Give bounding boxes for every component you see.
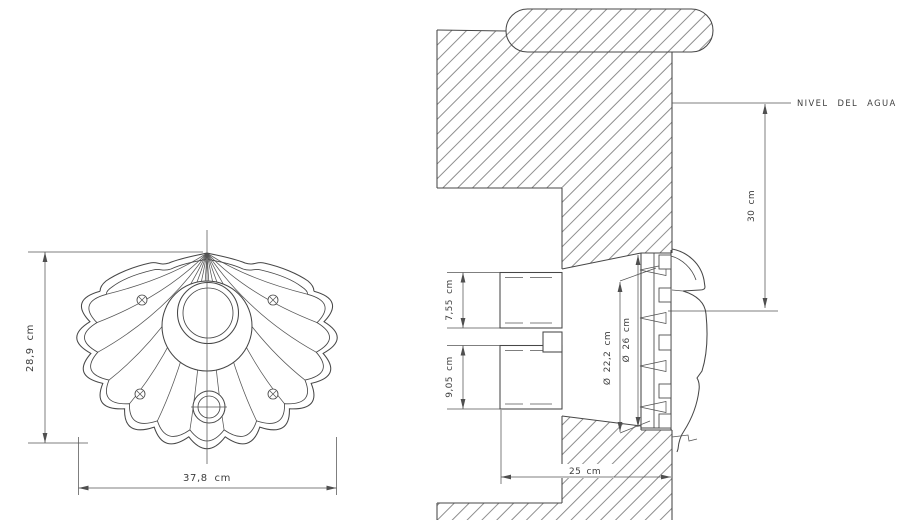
width-dimension: 37,8 cm: [79, 473, 337, 490]
shell-profile-side: [671, 249, 707, 452]
niche-section-view: NIVEL DEL AGUA 30 cm 7,55: [437, 9, 897, 520]
niche-diameter-dim-label: Ø 26 cm: [621, 318, 632, 363]
screw-top-left: [137, 295, 147, 305]
rim-clip: [659, 255, 671, 269]
upper-conduit-dim-label: 7,55 cm: [445, 279, 455, 320]
spring-clip: [640, 361, 666, 372]
screw-bottom-left: [135, 389, 145, 399]
wall-hatch-lower: [437, 416, 672, 520]
screw-top-right: [268, 295, 278, 305]
coping-stone-hatch: [506, 9, 713, 52]
spring-clip: [640, 402, 666, 413]
lower-conduit-dimension: 9,05 cm: [445, 346, 500, 410]
upper-conduit-dimension: 7,55 cm: [445, 273, 500, 329]
water-depth-dimension: 30 cm: [668, 104, 778, 311]
rim-clip: [659, 384, 671, 398]
junction-box: [543, 332, 562, 352]
upper-conduit-socket: [500, 273, 562, 329]
niche-diameter-dimension: Ø 26 cm: [621, 255, 640, 427]
lower-conduit-socket: [500, 346, 562, 410]
technical-drawing-page: 28,9 cm 37,8 cm: [0, 0, 900, 520]
water-depth-dim-label: 30 cm: [747, 190, 757, 222]
rim-clip: [659, 288, 671, 302]
rim-clip: [659, 414, 671, 428]
technical-drawing-canvas: 28,9 cm 37,8 cm: [0, 0, 900, 520]
lower-conduit-dim-label: 9,05 cm: [445, 356, 455, 397]
front-height-dim-label: 28,9 cm: [25, 324, 36, 372]
niche-depth-dim-label: 25 cm: [569, 467, 601, 477]
spring-clip: [640, 313, 666, 324]
lens-outer-circle: [178, 283, 239, 344]
height-dimension: 28,9 cm: [25, 252, 47, 443]
water-level-label: NIVEL DEL AGUA: [797, 98, 897, 108]
rim-clip: [659, 335, 671, 350]
screw-bottom-right: [268, 389, 278, 399]
shell-front-view: 28,9 cm 37,8 cm: [25, 230, 337, 495]
front-width-dim-label: 37,8 cm: [183, 473, 231, 484]
lamp-diameter-dim-label: Ø 22,2 cm: [602, 331, 613, 385]
niche-rim: [640, 250, 671, 430]
wall-hatch-upper: [437, 30, 672, 269]
